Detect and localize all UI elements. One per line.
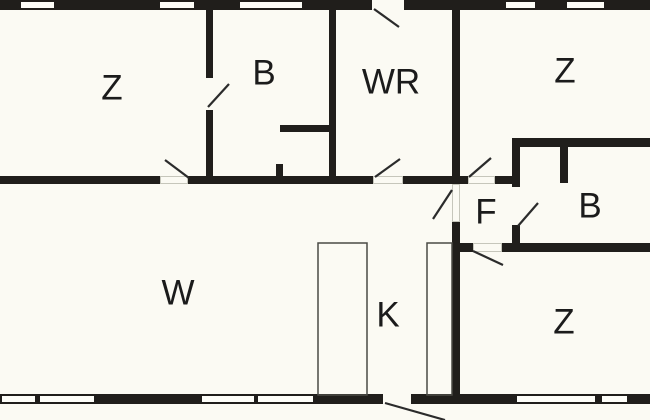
room-label-kitchen: K (376, 296, 399, 335)
wall (560, 147, 568, 183)
room-label-bathroom-right: B (578, 187, 601, 226)
window (506, 2, 535, 8)
room-label-utility-room: WR (362, 63, 420, 102)
wall (206, 10, 213, 78)
wall (512, 225, 520, 243)
window (40, 396, 94, 402)
wall (276, 164, 283, 176)
window (160, 2, 194, 8)
room-label-living-room: W (161, 274, 194, 313)
wall (329, 10, 336, 184)
window (202, 396, 254, 402)
wall (206, 110, 213, 176)
wall (502, 243, 650, 252)
wall (452, 10, 460, 184)
room-label-hallway: F (475, 193, 496, 232)
wall (495, 176, 512, 184)
room-label-bedroom-top-left: Z (101, 69, 122, 108)
plan-background (0, 0, 650, 420)
wall (403, 176, 468, 184)
wall (512, 138, 650, 147)
floor-plan-drawing: ZBWRZFBWKZ (0, 0, 650, 420)
window (517, 396, 595, 402)
wall (280, 125, 336, 132)
room-label-bathroom-top: B (252, 54, 275, 93)
wall (458, 243, 473, 252)
window (2, 396, 35, 402)
wall (188, 176, 373, 184)
window (21, 2, 54, 8)
floor-plan: ZBWRZFBWKZ (0, 0, 650, 420)
room-label-bedroom-bottom-right: Z (553, 303, 574, 342)
window (258, 396, 313, 402)
window (240, 2, 302, 8)
room-label-bedroom-top-right: Z (554, 52, 575, 91)
door-opening (372, 0, 404, 10)
wall (0, 0, 650, 10)
window (567, 2, 604, 8)
window (602, 396, 627, 402)
wall (512, 147, 520, 187)
wall (0, 176, 160, 184)
